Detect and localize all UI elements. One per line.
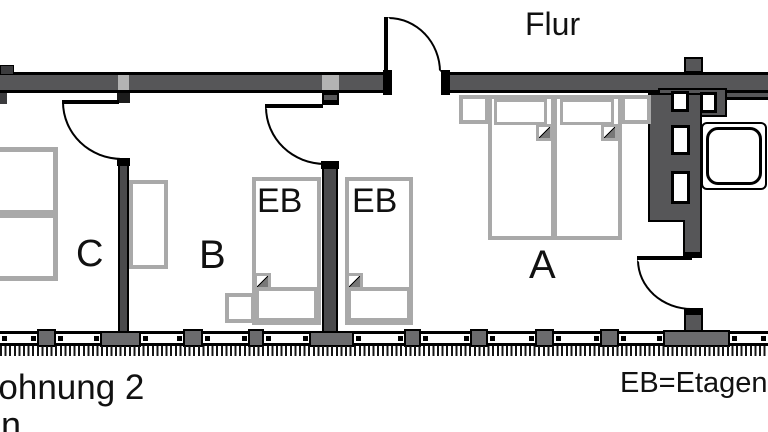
- window-mullion: [404, 329, 421, 347]
- double-bed-divider: [551, 97, 557, 238]
- hall-door-arc: [388, 17, 441, 72]
- hall-door-jamb-left: [383, 70, 392, 95]
- window-mullion: [37, 329, 56, 347]
- wall-junction-notch-ba: [322, 75, 339, 90]
- room-a-label: A: [529, 243, 556, 288]
- wall-right-extra-strip: [727, 93, 768, 100]
- ba-door-stub-cap: [322, 100, 339, 105]
- apartment-label-line2: n: [1, 404, 21, 432]
- window-segment: [264, 331, 310, 346]
- shaft-niche-4: [671, 171, 690, 204]
- nightstand-a-left: [459, 95, 489, 124]
- bunk-bed-left-fold: [254, 273, 271, 290]
- window-mullion: [600, 329, 619, 347]
- double-bed-fold-right: [601, 124, 618, 141]
- bunk-bed-right-label: EB: [352, 182, 397, 221]
- wall-foot-right: [663, 330, 730, 347]
- bunk-bed-right-footer: [347, 287, 411, 322]
- shower-tray-inner: [706, 127, 762, 185]
- window-segment: [421, 331, 471, 346]
- shaft-niche-2: [700, 92, 717, 113]
- ba-wall-cap: [321, 161, 339, 169]
- window-mullion: [183, 329, 203, 347]
- wall-foot-cb: [100, 331, 141, 347]
- shaft-stub-above-wall: [684, 57, 703, 73]
- window-segment: [488, 331, 536, 346]
- wall-foot-ba: [309, 331, 354, 347]
- wall-c-b: [118, 166, 129, 334]
- double-bed-pillow-left: [494, 99, 547, 125]
- wall-top-step: [0, 65, 14, 75]
- room-c-label: C: [76, 233, 103, 276]
- wall-junction-notch-cb: [118, 75, 129, 90]
- window-mullion: [535, 329, 554, 347]
- window-segment: [0, 331, 38, 346]
- window-segment: [56, 331, 101, 346]
- bed-room-c-divider: [0, 210, 54, 218]
- window-segment: [141, 331, 184, 346]
- apartment-label: Wohnung 2: [0, 368, 144, 408]
- window-segment: [619, 331, 664, 346]
- double-bed-pillow-right: [560, 99, 614, 125]
- a-door-stub-cap: [684, 308, 703, 315]
- cb-door-arc: [62, 102, 122, 160]
- double-bed-fold-left: [536, 124, 553, 141]
- nightstand-a-right: [621, 95, 651, 124]
- window-segment: [354, 331, 405, 346]
- shaft-niche-1: [671, 91, 689, 112]
- bunk-bed-left-footer: [255, 287, 318, 322]
- ba-door-arc: [265, 107, 325, 165]
- floor-plan: Flur C B A EB EB Wohnung 2 n EB=Etagenbe…: [0, 0, 768, 432]
- window-mullion: [470, 329, 488, 347]
- window-segment: [203, 331, 249, 346]
- shaft-niche-3: [671, 125, 690, 155]
- window-mullion: [248, 329, 264, 347]
- facade-hatch: [0, 346, 768, 356]
- hallway-label: Flur: [525, 6, 580, 43]
- cb-wall-cap: [117, 158, 130, 166]
- wall-left-edge-stub: [0, 93, 7, 104]
- window-segment: [554, 331, 601, 346]
- legend-label: EB=Etagenbett: [620, 367, 768, 400]
- a-door-arc: [637, 260, 692, 310]
- window-segment: [730, 331, 768, 346]
- nightstand-room-b: [225, 293, 255, 323]
- wall-b-a: [322, 169, 338, 334]
- room-b-label: B: [199, 233, 226, 278]
- hall-door-jamb-right: [441, 70, 450, 95]
- bunk-bed-right-fold: [346, 273, 363, 290]
- wardrobe-room-b: [129, 180, 168, 269]
- bunk-bed-left-label: EB: [257, 182, 302, 221]
